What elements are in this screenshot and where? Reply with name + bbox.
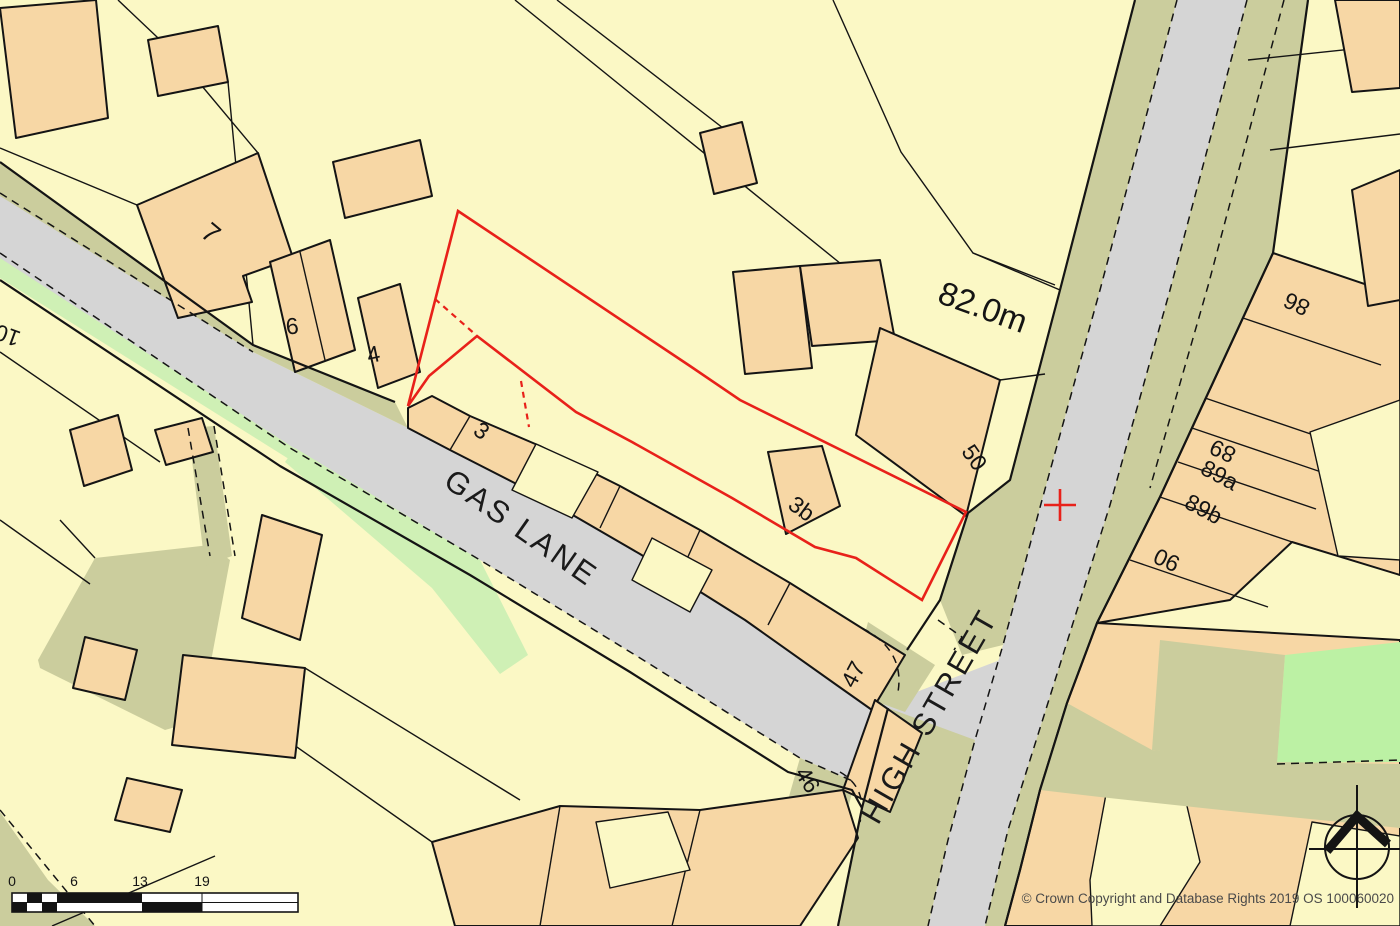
scale-tick-13: 13 [132, 873, 148, 889]
scale-tick-19: 19 [194, 873, 210, 889]
scale-tick-6: 6 [70, 873, 78, 889]
map-canvas[interactable]: GAS LANE HIGH STREET 82.0m 7 6 4 10 3 3b… [0, 0, 1400, 926]
scale-tick-0: 0 [8, 873, 16, 889]
house-number-6: 6 [284, 312, 299, 339]
copyright-notice: © Crown Copyright and Database Rights 20… [1022, 891, 1394, 906]
os-map-viewport[interactable]: GAS LANE HIGH STREET 82.0m 7 6 4 10 3 3b… [0, 0, 1400, 926]
